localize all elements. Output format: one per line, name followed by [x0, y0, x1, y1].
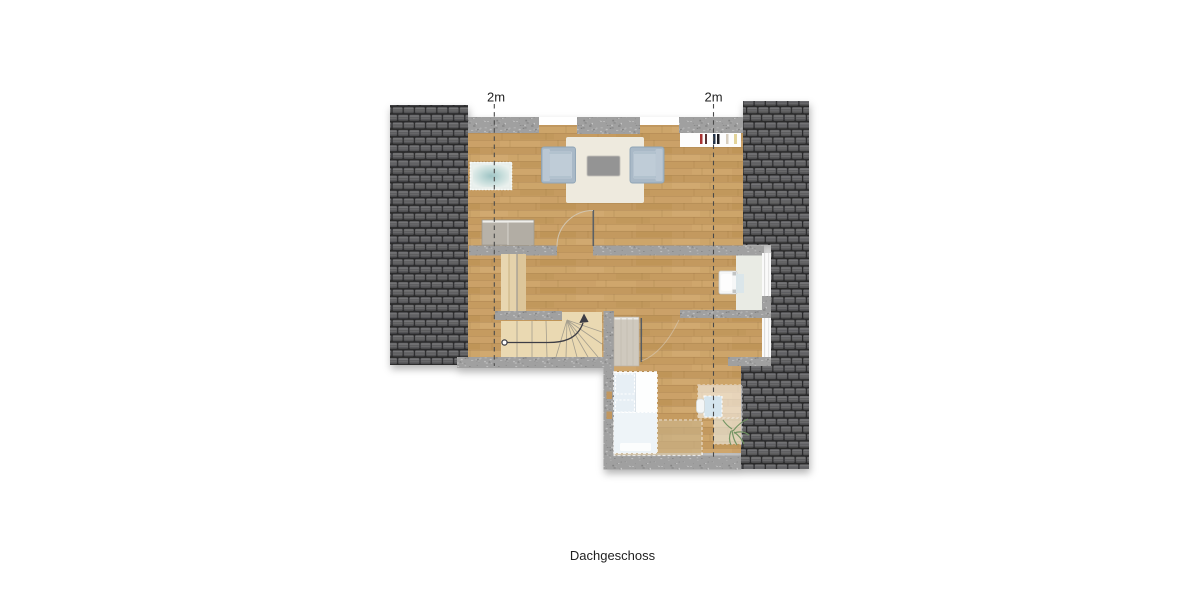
svg-text:2m: 2m	[487, 90, 505, 105]
svg-text:Dachgeschoss: Dachgeschoss	[570, 548, 656, 563]
svg-text:2m: 2m	[704, 90, 722, 105]
